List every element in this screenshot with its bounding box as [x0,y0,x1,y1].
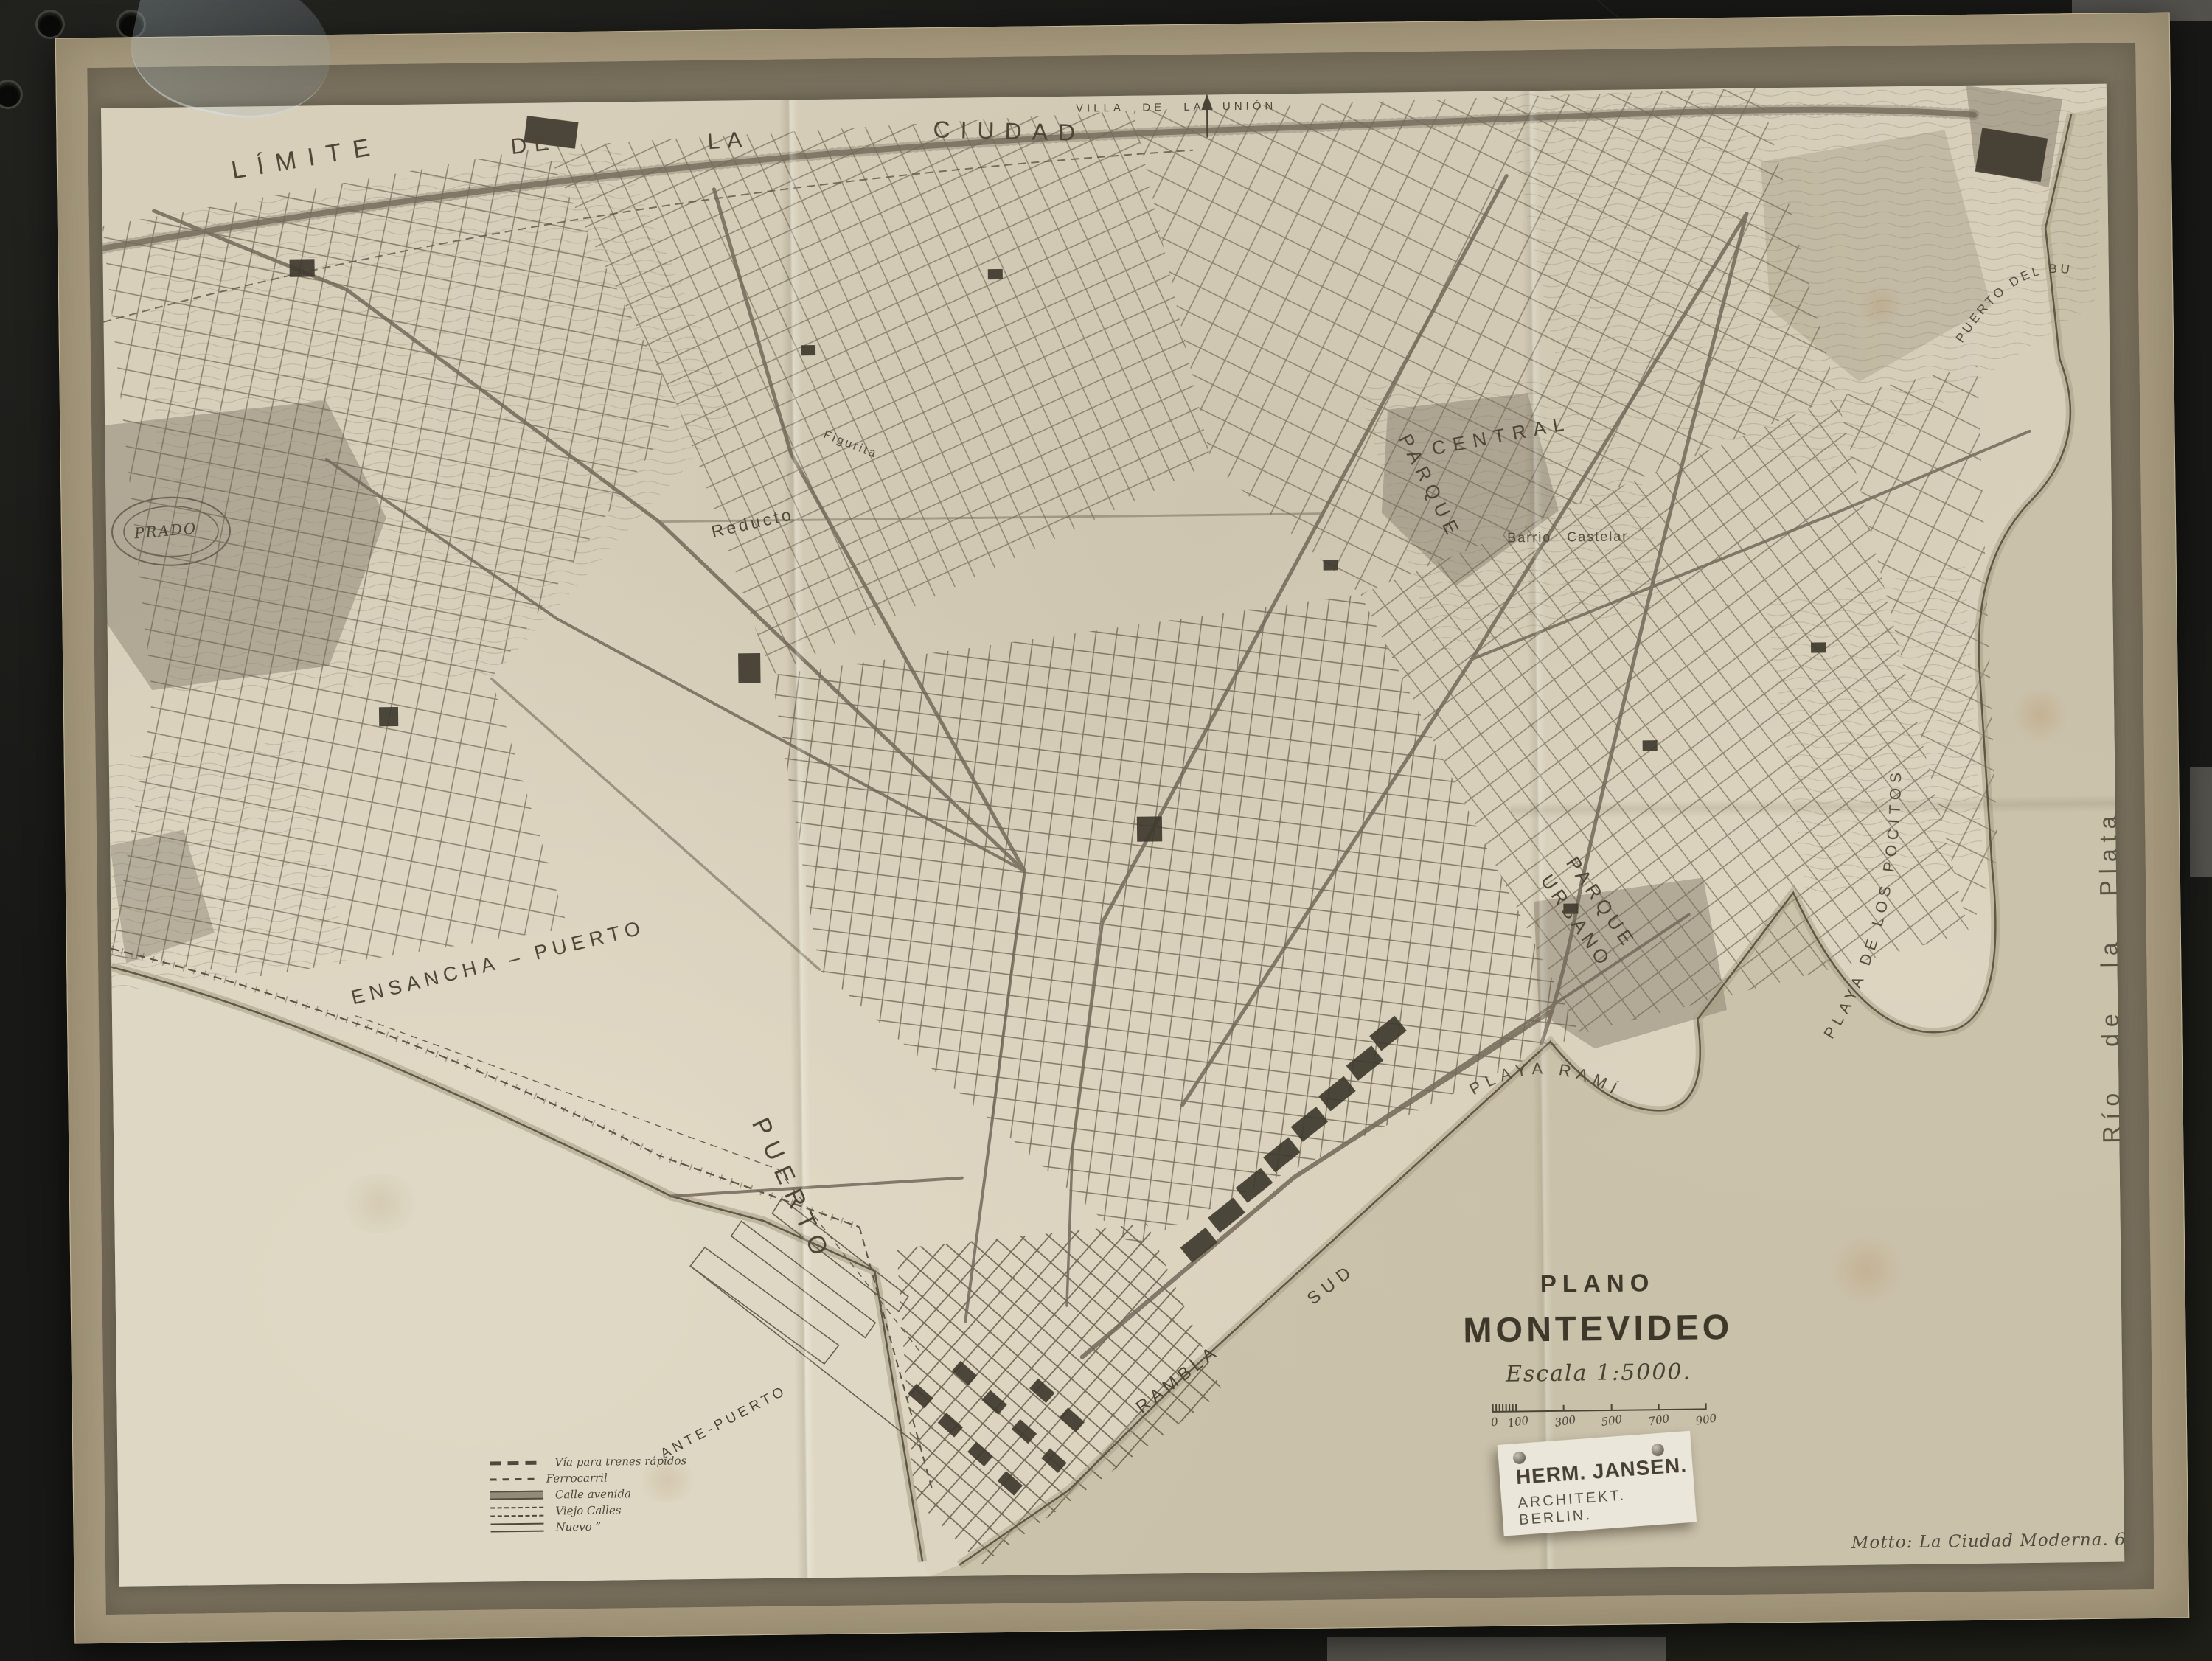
tape-strip [1327,1637,1666,1661]
map-paper: PLAYA RAMÍREZ PLAYA DE LOS POCITOS PUERT… [101,84,2124,1587]
punch-hole [0,82,21,107]
scale-bar-line [1492,1408,1706,1413]
railway-line-icon [490,1477,535,1480]
pin-icon [1512,1451,1526,1464]
map-drawing: PLAYA RAMÍREZ PLAYA DE LOS POCITOS PUERT… [101,84,2124,1587]
new-street-line-icon [490,1523,543,1533]
scale-tick [1562,1405,1564,1412]
motto-text: Motto: La Ciudad Moderna. 6 [1851,1530,2126,1553]
scale-number: 900 [1694,1411,1717,1427]
photo-background: PLAYA RAMÍREZ PLAYA DE LOS POCITOS PUERT… [0,0,2212,1661]
scale-number: 500 [1601,1413,1624,1429]
legend-row: Nuevo ” [490,1517,687,1536]
scale-tick [1611,1404,1613,1411]
limite-word: DE [509,130,557,160]
barrio-castelar-label: Barrio Castelar [1507,529,1628,546]
legend: Vía para trenes rápidos Ferrocarril Call… [490,1452,687,1536]
legend-label: Nuevo ” [555,1520,601,1534]
scale-label: Escala 1:5000. [1444,1359,1753,1388]
legend-row: Viejo Calles [490,1501,687,1519]
scale-number: 700 [1648,1412,1671,1428]
scale-tick [1516,1406,1517,1413]
legend-label: Ferrocarril [546,1472,608,1486]
scale-tick [1658,1404,1660,1410]
map-sheet: PLAYA RAMÍREZ PLAYA DE LOS POCITOS PUERT… [55,13,2189,1644]
legend-row: Ferrocarril [490,1469,687,1487]
title-block: PLANO MONTEVIDEO Escala 1:5000. 0 100 30… [1442,1268,1754,1430]
tape-strip [2190,767,2212,877]
legend-row: Calle avenida [490,1485,687,1503]
architect-card: HERM. JANSEN. ARCHITEKT. BERLIN. [1498,1431,1697,1536]
old-street-line-icon [490,1506,543,1517]
scale-bar-comb [1492,1404,1517,1411]
rio-de-la-plata-label: Río de la Plata [2094,784,2126,1168]
scale-tick [1492,1406,1494,1413]
punch-hole [38,12,63,37]
architect-role: ARCHITEKT. BERLIN. [1517,1483,1697,1529]
legend-label: Calle avenida [555,1487,631,1501]
scale-bar: 0 100 300 500 700 900 [1492,1401,1706,1429]
villa-union-label: VILLA DE LA UNIÓN [1076,100,1276,114]
legend-label: Viejo Calles [555,1503,622,1517]
scale-tick [1705,1403,1706,1410]
limite-word: LA [707,128,751,156]
fast-rail-line-icon [490,1460,543,1465]
scale-number: 300 [1554,1413,1576,1430]
avenue-line-icon [490,1491,543,1500]
legend-label: Vía para trenes rápidos [554,1454,686,1469]
limite-word: CIUDAD [933,116,1085,147]
scale-number: 0 [1490,1415,1499,1429]
scale-number: 100 [1506,1413,1529,1430]
map-title-kicker: PLANO [1442,1268,1752,1300]
legend-row: Vía para trenes rápidos [490,1452,686,1471]
map-title: MONTEVIDEO [1443,1306,1753,1351]
